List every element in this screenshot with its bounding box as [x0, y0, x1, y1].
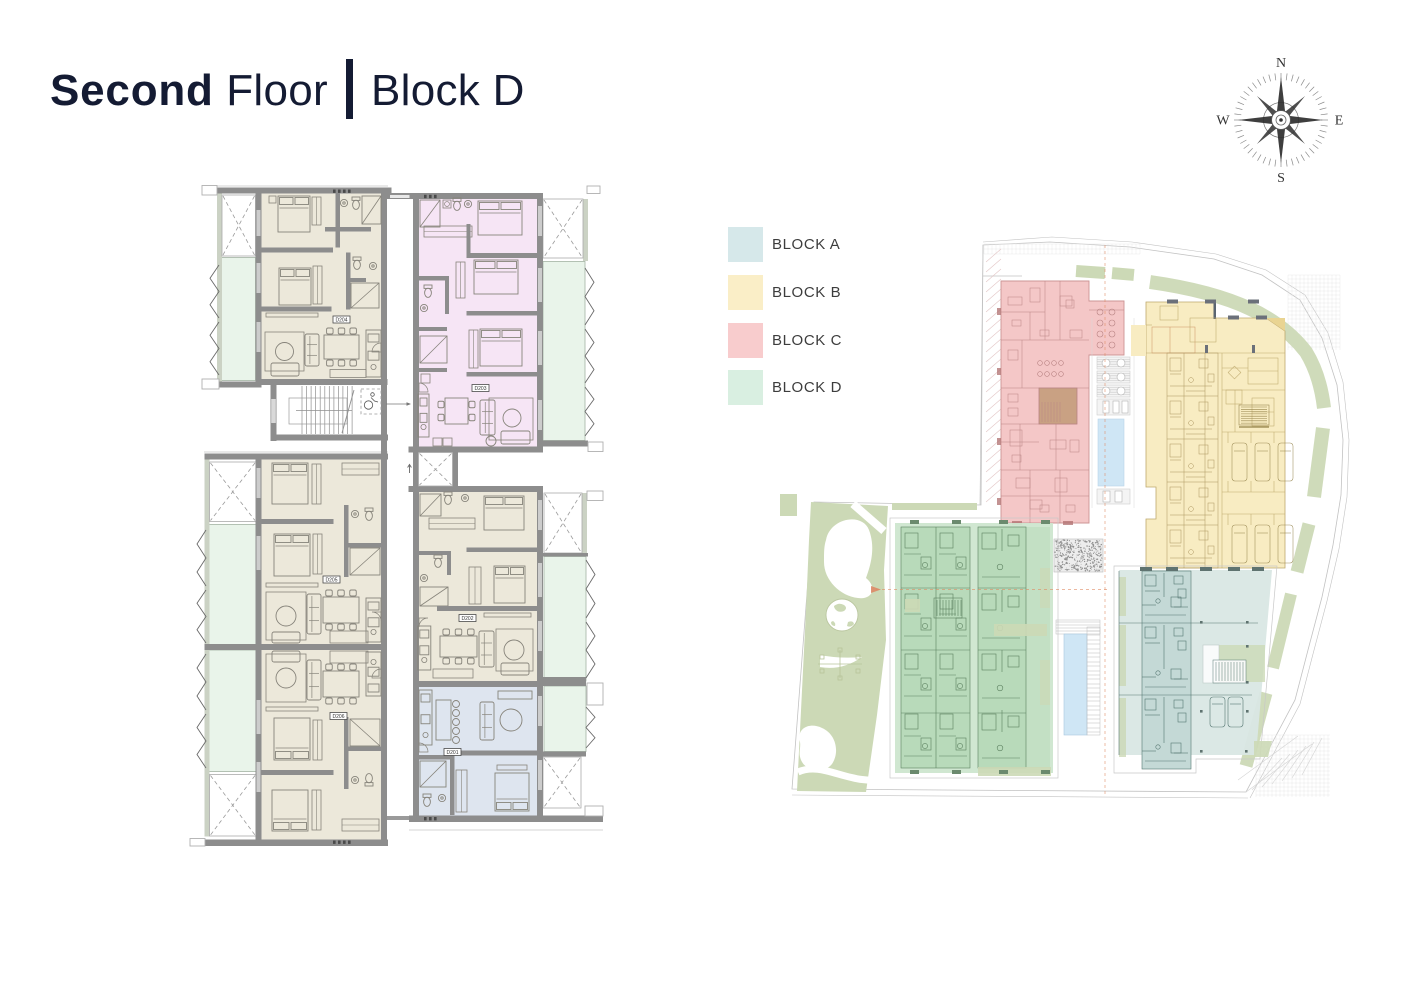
- svg-text:D206: D206: [333, 714, 345, 720]
- svg-text:D201: D201: [447, 750, 459, 756]
- svg-text:D202: D202: [462, 616, 474, 622]
- svg-text:D205: D205: [326, 577, 338, 583]
- svg-text:D203: D203: [475, 386, 487, 392]
- svg-text:S: S: [1277, 171, 1285, 186]
- svg-text:D204: D204: [336, 317, 348, 323]
- svg-text:N: N: [1276, 56, 1286, 71]
- svg-text:E: E: [1335, 114, 1344, 129]
- svg-text:W: W: [1216, 114, 1230, 129]
